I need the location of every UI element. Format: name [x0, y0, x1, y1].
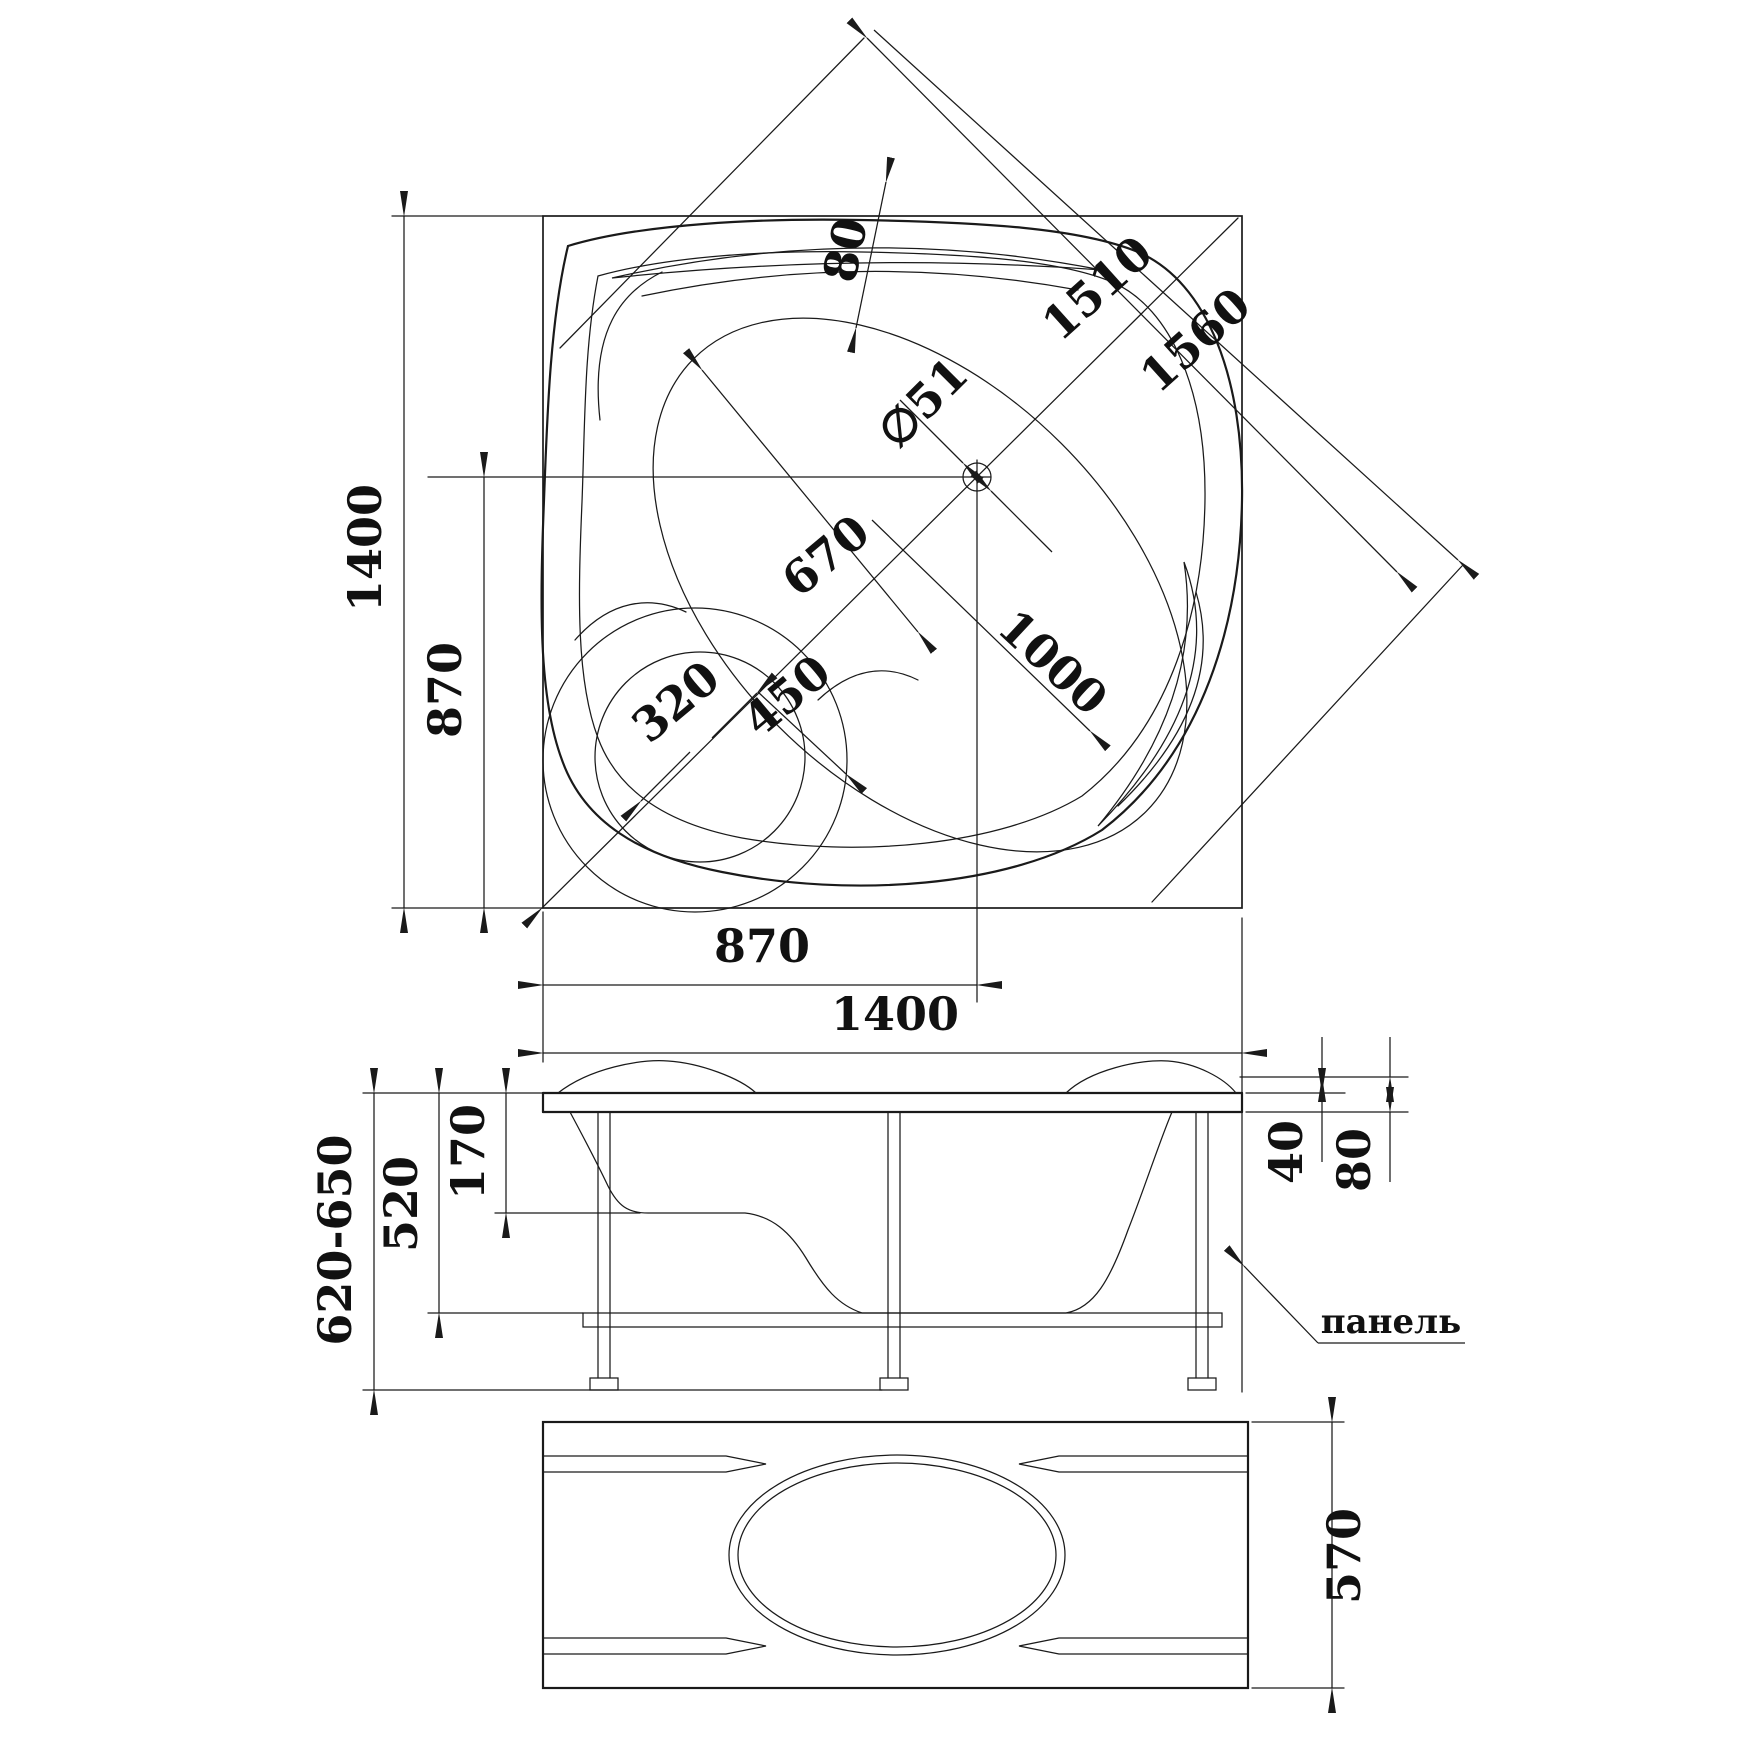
dim-label-40: 40 [1259, 1120, 1313, 1184]
panel-slot-top-right [1019, 1456, 1248, 1472]
headrest-hump-left [558, 1061, 756, 1093]
panel-oval-outer [729, 1455, 1065, 1655]
plan-square-outline [543, 216, 1242, 908]
dim-label-450: 450 [733, 644, 841, 747]
panel-slot-bottom-left [543, 1638, 766, 1654]
dim-label-1400-horizontal: 1400 [831, 987, 959, 1041]
panel-leader-line [1244, 1266, 1318, 1343]
dim-label-870-horizontal: 870 [714, 919, 810, 973]
frame-bottom-bar [583, 1313, 1222, 1327]
panel-slot-top-left [543, 1456, 766, 1472]
dim-label-870-vertical: 870 [418, 642, 472, 738]
dim-label-170: 170 [441, 1104, 495, 1200]
tub-profile [570, 1112, 1172, 1313]
dim-label-520: 520 [374, 1156, 428, 1252]
dim-label-1000: 1000 [988, 599, 1118, 726]
diagonal-construction-line [542, 218, 1238, 908]
dim-label-1510: 1510 [1032, 225, 1163, 351]
panel-rect [543, 1422, 1248, 1688]
panel-slot-bottom-right [1019, 1638, 1248, 1654]
extension-line-front-tangent [1152, 566, 1462, 902]
dim-label-80-side: 80 [1327, 1128, 1381, 1192]
dim-label-670: 670 [772, 504, 880, 607]
drawing-page: 1400 870 870 1400 1510 1560 80 ∅51 670 1… [0, 0, 1754, 1754]
dim-label-80-rim: 80 [812, 213, 878, 287]
dim-label-570: 570 [1317, 1508, 1371, 1604]
dim-label-drain: ∅51 [867, 347, 979, 459]
bottom-view: 570 [543, 1422, 1371, 1688]
frame-foot-left [590, 1378, 618, 1390]
bath-inner-rim [579, 252, 1205, 848]
plan-view: 1400 870 870 1400 1510 1560 80 ∅51 670 1… [338, 30, 1462, 1062]
frame-foot-right [1188, 1378, 1216, 1390]
headrest-hump-right [1066, 1061, 1236, 1093]
extension-line-diagonal-vertex [560, 38, 864, 348]
dim-line-1560 [874, 30, 1458, 560]
panel-label: панель [1321, 1302, 1461, 1342]
bathtub-technical-drawing: 1400 870 870 1400 1510 1560 80 ∅51 670 1… [0, 0, 1754, 1754]
dim-label-620-650: 620-650 [308, 1134, 362, 1345]
seat-merge-curve-left [575, 603, 686, 640]
frame-foot-mid [880, 1378, 908, 1390]
dim-arrow-320 [641, 752, 690, 801]
panel-oval-inner [738, 1463, 1056, 1647]
dim-line-drain-se [991, 491, 1052, 552]
dim-label-1400-vertical: 1400 [338, 484, 392, 612]
dim-line-1510 [867, 38, 1397, 572]
